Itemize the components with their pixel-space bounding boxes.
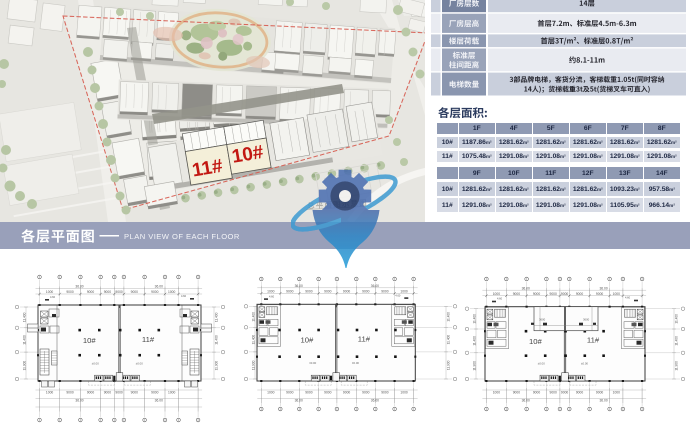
svg-text:±0.00: ±0.00 <box>136 361 143 365</box>
svg-text:9000: 9000 <box>550 292 558 296</box>
svg-text:1000: 1000 <box>493 391 501 395</box>
svg-text:9000: 9000 <box>115 290 123 294</box>
svg-text:36.00: 36.00 <box>522 399 530 403</box>
svg-text:11.400: 11.400 <box>23 335 27 345</box>
svg-text:1000: 1000 <box>168 290 176 294</box>
svg-text:9000: 9000 <box>596 391 604 395</box>
svg-text:36.00: 36.00 <box>522 286 530 290</box>
svg-text:9000: 9000 <box>286 289 294 293</box>
svg-text:9000: 9000 <box>362 391 370 395</box>
svg-text:9000: 9000 <box>513 391 521 395</box>
svg-text:9000: 9000 <box>305 391 313 395</box>
svg-text:36.00: 36.00 <box>155 399 163 403</box>
svg-text:36.00: 36.00 <box>371 399 379 403</box>
svg-text:±0.00: ±0.00 <box>309 361 316 365</box>
svg-text:±0.00: ±0.00 <box>352 361 359 365</box>
svg-text:9000: 9000 <box>324 289 332 293</box>
svg-text:9000: 9000 <box>87 391 95 395</box>
svg-text:11.400: 11.400 <box>447 335 451 345</box>
svg-text:±0.00: ±0.00 <box>581 362 588 366</box>
svg-text:1000: 1000 <box>493 292 501 296</box>
svg-text:11#: 11# <box>142 335 155 344</box>
svg-text:9000: 9000 <box>533 391 541 395</box>
svg-text:36.00: 36.00 <box>295 399 303 403</box>
svg-text:36.00: 36.00 <box>75 399 83 403</box>
svg-text:9000: 9000 <box>104 391 112 395</box>
svg-text:11.400: 11.400 <box>447 312 451 322</box>
svg-text:9000: 9000 <box>151 391 159 395</box>
svg-text:1000: 1000 <box>613 292 621 296</box>
svg-text:11.400: 11.400 <box>252 335 256 345</box>
svg-text:11#: 11# <box>587 336 600 345</box>
svg-text:9000: 9000 <box>513 292 521 296</box>
svg-text:36.00: 36.00 <box>75 285 83 289</box>
svg-text:11.400: 11.400 <box>675 314 679 324</box>
svg-text:9000: 9000 <box>87 290 95 294</box>
svg-text:1000: 1000 <box>168 391 176 395</box>
svg-text:1000: 1000 <box>46 290 54 294</box>
svg-text:9000: 9000 <box>576 292 584 296</box>
svg-text:36.00: 36.00 <box>371 284 379 288</box>
svg-text:9000: 9000 <box>131 290 139 294</box>
svg-text:9000: 9000 <box>381 289 389 293</box>
svg-text:9000: 9000 <box>131 391 139 395</box>
svg-text:11.900: 11.900 <box>23 361 27 371</box>
svg-text:9000: 9000 <box>576 391 584 395</box>
svg-text:4.60: 4.60 <box>181 294 187 298</box>
svg-text:10#: 10# <box>300 336 314 345</box>
svg-text:36.00: 36.00 <box>599 286 607 290</box>
svg-text:9000: 9000 <box>115 391 123 395</box>
svg-text:4.60: 4.60 <box>395 293 401 297</box>
svg-text:1000: 1000 <box>400 289 408 293</box>
svg-text:1000: 1000 <box>267 391 275 395</box>
svg-text:±0.00: ±0.00 <box>538 362 545 366</box>
svg-text:4.60: 4.60 <box>269 294 275 298</box>
svg-text:11.400: 11.400 <box>473 314 477 324</box>
svg-text:10#: 10# <box>529 337 543 346</box>
svg-text:9000: 9000 <box>324 391 332 395</box>
svg-text:1000: 1000 <box>613 391 621 395</box>
svg-text:11.400: 11.400 <box>215 335 219 345</box>
svg-text:9000: 9000 <box>104 290 112 294</box>
svg-text:9000: 9000 <box>561 391 569 395</box>
svg-text:10#: 10# <box>83 336 97 345</box>
svg-text:11#: 11# <box>358 335 371 344</box>
svg-text:11.400: 11.400 <box>252 312 256 322</box>
svg-text:±0.00: ±0.00 <box>92 361 99 365</box>
svg-text:1000: 1000 <box>400 391 408 395</box>
svg-text:11.900: 11.900 <box>675 361 679 371</box>
svg-text:1000: 1000 <box>267 289 275 293</box>
svg-text:1000: 1000 <box>46 391 54 395</box>
svg-text:9000: 9000 <box>305 289 313 293</box>
svg-text:11.400: 11.400 <box>473 336 477 346</box>
svg-text:9000: 9000 <box>550 391 558 395</box>
svg-text:11.400: 11.400 <box>675 336 679 346</box>
svg-text:36.00: 36.00 <box>295 284 303 288</box>
svg-text:9000: 9000 <box>362 289 370 293</box>
svg-text:11.400: 11.400 <box>23 312 27 322</box>
svg-text:9000: 9000 <box>286 391 294 395</box>
svg-text:4.60: 4.60 <box>497 297 503 301</box>
svg-text:3600: 3600 <box>539 318 546 322</box>
svg-text:11.400: 11.400 <box>215 312 219 322</box>
svg-text:36.00: 36.00 <box>599 399 607 403</box>
svg-text:9000: 9000 <box>66 391 74 395</box>
svg-text:9000: 9000 <box>533 292 541 296</box>
svg-text:4.60: 4.60 <box>625 296 631 300</box>
svg-text:PLAN VIEW OF EACH FLOOR: PLAN VIEW OF EACH FLOOR <box>124 232 240 241</box>
svg-text:9000: 9000 <box>151 290 159 294</box>
svg-text:3600: 3600 <box>583 318 590 322</box>
svg-text:9000: 9000 <box>66 290 74 294</box>
svg-text:11.900: 11.900 <box>473 361 477 371</box>
svg-text:9000: 9000 <box>343 391 351 395</box>
svg-text:9000: 9000 <box>596 292 604 296</box>
svg-text:11.900: 11.900 <box>252 360 256 370</box>
svg-text:9000: 9000 <box>343 289 351 293</box>
svg-text:9000: 9000 <box>381 391 389 395</box>
svg-text:36.00: 36.00 <box>155 285 163 289</box>
svg-text:4.60: 4.60 <box>50 295 56 299</box>
svg-text:9000: 9000 <box>561 292 569 296</box>
svg-text:11.900: 11.900 <box>215 361 219 371</box>
svg-text:11.900: 11.900 <box>447 360 451 370</box>
